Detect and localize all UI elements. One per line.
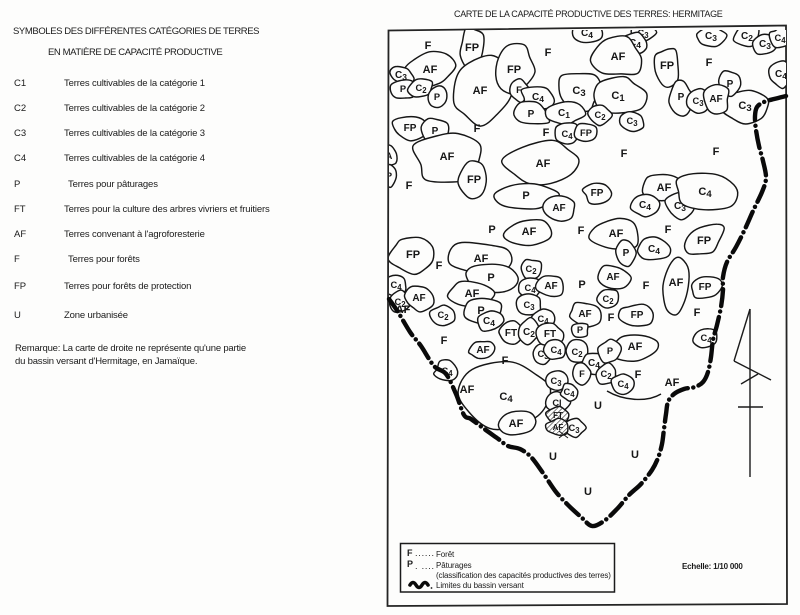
- svg-text:P: P: [400, 84, 406, 94]
- svg-text:F: F: [643, 280, 650, 292]
- svg-text:FP: FP: [699, 282, 712, 293]
- svg-text:P: P: [607, 346, 613, 356]
- svg-text:P: P: [577, 325, 583, 335]
- svg-text:FP: FP: [580, 128, 592, 138]
- svg-text:AF: AF: [476, 345, 489, 356]
- svg-text:FP: FP: [507, 64, 521, 76]
- svg-text:F: F: [694, 307, 701, 319]
- svg-text:CARTE DE LA CAPACITÉ PRODUCTIV: CARTE DE LA CAPACITÉ PRODUCTIVE DES TERR…: [454, 9, 723, 19]
- svg-text:C4: C4: [775, 69, 787, 81]
- svg-text:FP: FP: [404, 123, 417, 134]
- svg-text:P: P: [407, 559, 413, 569]
- svg-text:(classification des capacités: (classification des capacités productive…: [436, 571, 611, 580]
- svg-text:F: F: [578, 225, 585, 237]
- svg-text:C4: C4: [648, 244, 660, 256]
- svg-text:F: F: [436, 260, 443, 272]
- svg-text:C1: C1: [558, 108, 570, 120]
- svg-text:F: F: [713, 146, 720, 158]
- svg-text:C4: C4: [639, 200, 651, 212]
- svg-text:P: P: [487, 272, 494, 284]
- svg-text:F: F: [665, 224, 672, 236]
- svg-text:U: U: [584, 486, 592, 498]
- svg-text:AF: AF: [657, 182, 672, 194]
- svg-text:F: F: [406, 180, 413, 192]
- svg-text:AF: AF: [709, 94, 722, 105]
- svg-text:U: U: [631, 449, 639, 461]
- svg-text:F: F: [545, 47, 552, 59]
- svg-text:Pâturages: Pâturages: [436, 561, 472, 570]
- svg-text:Forêt: Forêt: [436, 550, 455, 559]
- svg-text:FP: FP: [406, 249, 420, 261]
- svg-text:AF: AF: [473, 85, 488, 97]
- svg-text:F: F: [502, 355, 509, 367]
- svg-text:C3: C3: [705, 31, 717, 43]
- svg-text:AF: AF: [423, 64, 438, 76]
- svg-text:A: A: [386, 151, 393, 161]
- svg-text:AF: AF: [536, 158, 551, 170]
- svg-text:F: F: [441, 335, 448, 347]
- svg-text:AF: AF: [474, 253, 489, 265]
- svg-text:F: F: [706, 57, 713, 69]
- svg-text:P: P: [386, 171, 392, 181]
- svg-text:FP: FP: [631, 310, 644, 321]
- svg-text:. ....: . ....: [415, 561, 435, 571]
- svg-text:F: F: [621, 148, 628, 160]
- svg-text:U: U: [549, 451, 557, 463]
- svg-text:AF: AF: [665, 377, 680, 389]
- svg-text:U: U: [594, 400, 602, 412]
- svg-text:Limites du bassin versant: Limites du bassin versant: [436, 581, 525, 590]
- svg-text:AF: AF: [412, 293, 425, 304]
- svg-text:AF: AF: [628, 341, 643, 353]
- svg-text:C3: C3: [759, 39, 771, 51]
- svg-text:AF: AF: [552, 203, 565, 214]
- svg-text:FT: FT: [544, 329, 556, 340]
- svg-text:P: P: [528, 109, 535, 120]
- svg-text:Echelle: 1/10 000: Echelle: 1/10 000: [682, 562, 743, 571]
- svg-text:FP: FP: [465, 42, 479, 54]
- svg-text:C2: C2: [741, 31, 753, 43]
- svg-text:F: F: [635, 369, 642, 381]
- svg-text:C4: C4: [483, 316, 495, 328]
- svg-text:F: F: [543, 127, 550, 139]
- svg-text:AF: AF: [544, 281, 557, 292]
- svg-text:FP: FP: [467, 174, 481, 186]
- svg-text:F: F: [579, 369, 585, 379]
- svg-text:F: F: [608, 312, 615, 324]
- svg-text:......: ......: [415, 548, 435, 558]
- svg-text:FP: FP: [660, 60, 674, 72]
- svg-text:AF: AF: [522, 226, 537, 238]
- svg-text:AF: AF: [578, 309, 591, 320]
- svg-text:AF: AF: [669, 277, 684, 289]
- svg-text:F: F: [407, 548, 413, 558]
- svg-text:F: F: [474, 123, 481, 135]
- svg-text:AF: AF: [509, 418, 524, 430]
- svg-text:FP: FP: [697, 235, 711, 247]
- svg-text:P: P: [623, 248, 630, 259]
- svg-text:FT: FT: [505, 328, 517, 339]
- svg-text:P: P: [522, 190, 529, 202]
- svg-text:C2: C2: [523, 327, 535, 339]
- svg-text:P: P: [488, 224, 495, 236]
- svg-text:AF: AF: [440, 151, 455, 163]
- svg-text:F: F: [425, 40, 432, 52]
- svg-text:AF: AF: [609, 228, 624, 240]
- svg-text:AF: AF: [611, 51, 626, 63]
- svg-text:AF: AF: [460, 384, 475, 396]
- svg-text:P: P: [434, 92, 440, 102]
- svg-text:P: P: [578, 279, 585, 291]
- svg-text:FP: FP: [591, 188, 604, 199]
- svg-text:P: P: [678, 92, 685, 103]
- svg-text:AF: AF: [606, 272, 619, 283]
- svg-text:AF: AF: [553, 423, 564, 432]
